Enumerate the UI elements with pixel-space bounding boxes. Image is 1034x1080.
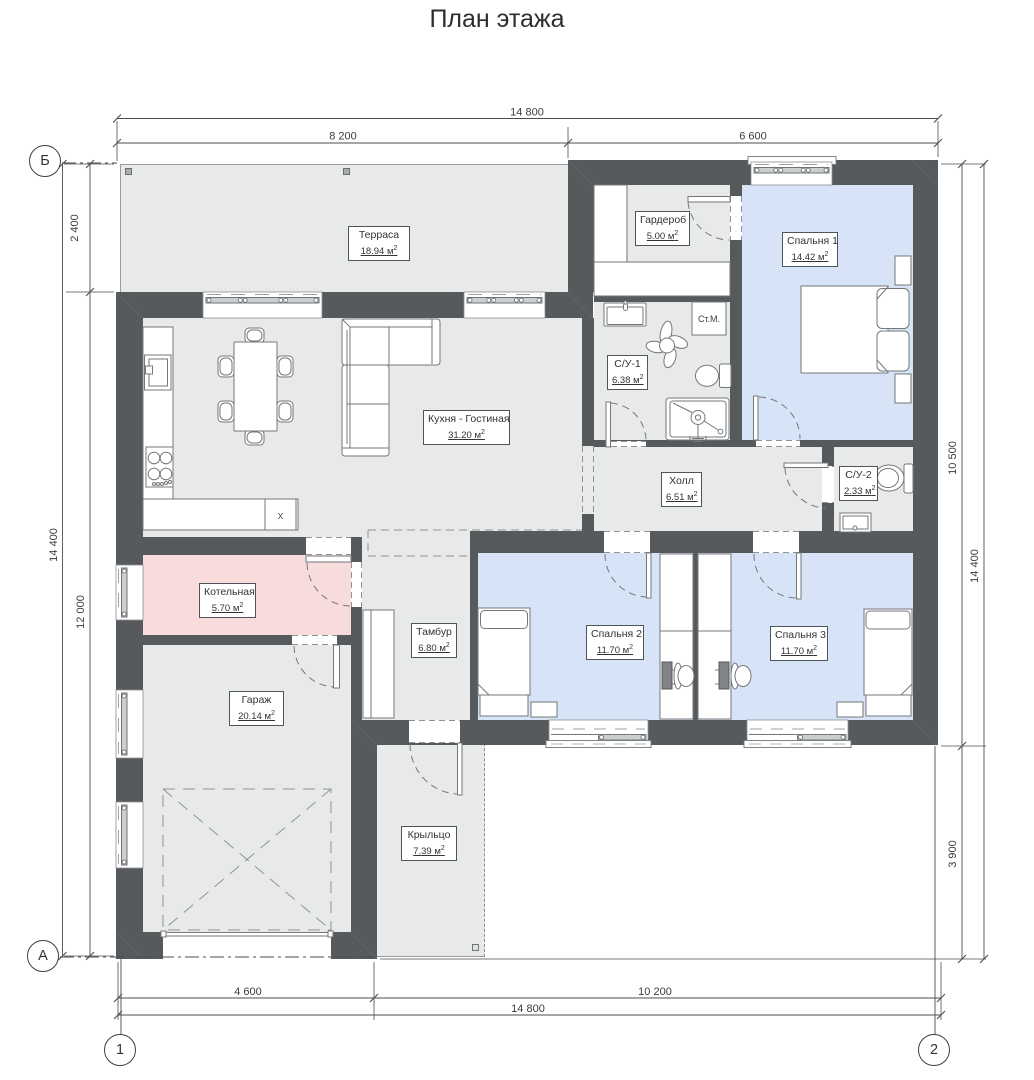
- svg-text:10 200: 10 200: [638, 986, 672, 998]
- svg-text:2 400: 2 400: [69, 214, 81, 242]
- svg-text:14 400: 14 400: [48, 528, 60, 562]
- svg-text:12 000: 12 000: [75, 595, 87, 629]
- svg-text:14 800: 14 800: [510, 107, 544, 119]
- svg-text:3 900: 3 900: [947, 840, 959, 868]
- svg-text:4 600: 4 600: [234, 986, 262, 998]
- svg-text:8 200: 8 200: [329, 131, 357, 143]
- svg-text:14 400: 14 400: [969, 549, 981, 583]
- svg-text:14 800: 14 800: [511, 1003, 545, 1015]
- svg-text:6 600: 6 600: [739, 131, 767, 143]
- svg-text:10 500: 10 500: [947, 441, 959, 475]
- svg-text:x: x: [278, 510, 284, 522]
- svg-text:Ст.М.: Ст.М.: [698, 314, 720, 324]
